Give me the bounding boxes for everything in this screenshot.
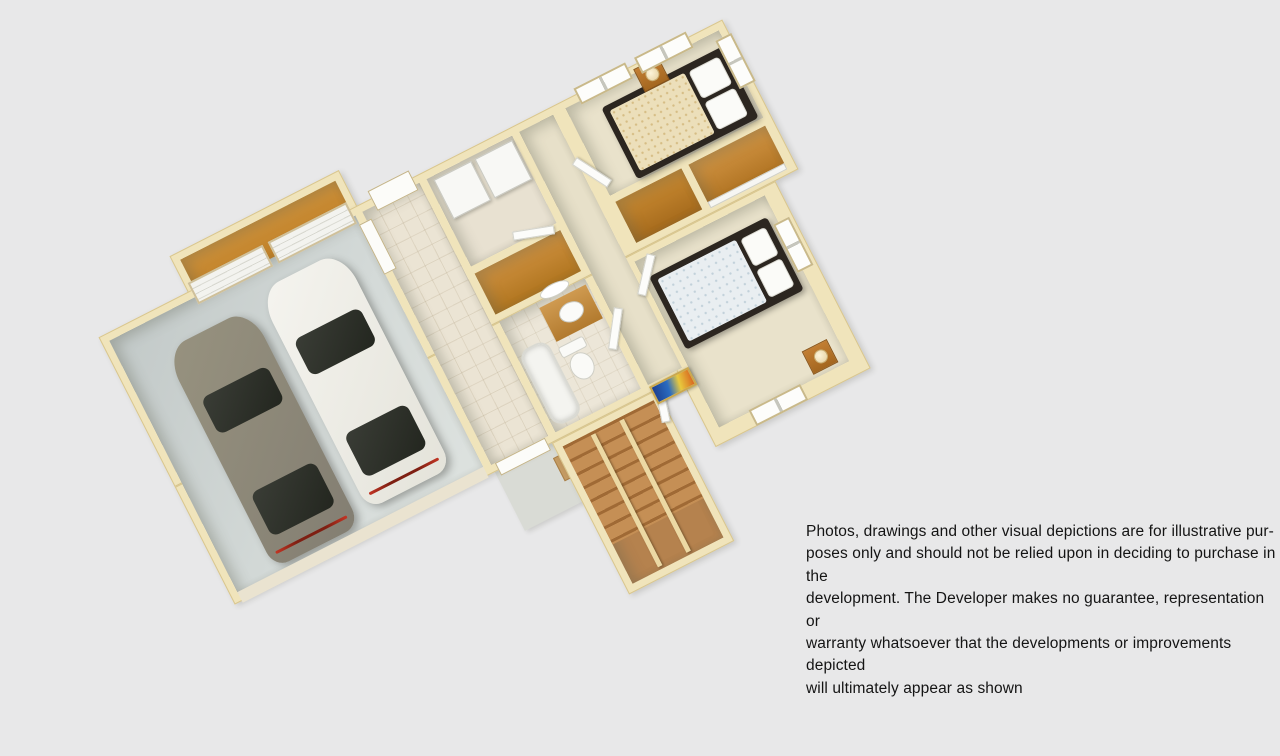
car-rear-window [250,461,335,537]
disclaimer-line: Photos, drawings and other visual depict… [806,521,1280,543]
disclaimer-line: warranty whatsoever that the development… [806,633,1280,678]
disclaimer-text: Photos, drawings and other visual depict… [806,521,1280,700]
car-windshield [200,365,286,436]
disclaimer-line: poses only and should not be relied upon… [806,543,1280,588]
car-rear-window [344,403,428,478]
disclaimer-line: will ultimately appear as shown [806,678,1280,700]
car-windshield [293,306,377,376]
floor-plan-render: Photos, drawings and other visual depict… [0,0,1280,656]
disclaimer-line: development. The Developer makes no guar… [806,588,1280,633]
table-lamp [812,347,831,366]
